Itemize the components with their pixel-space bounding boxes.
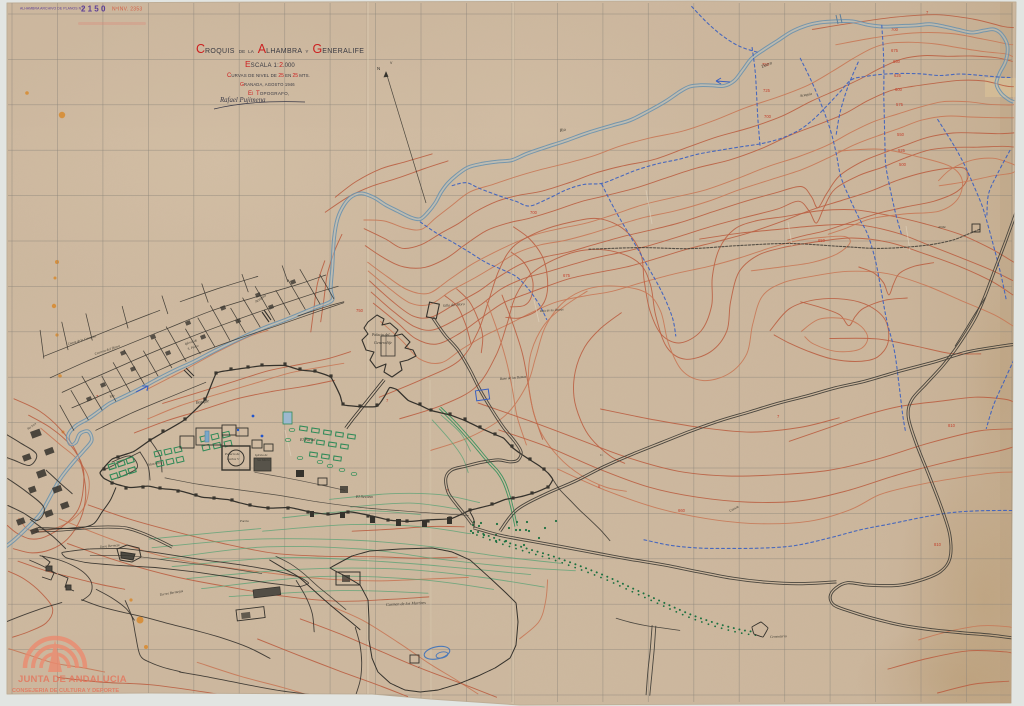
svg-text:525: 525 [898, 148, 906, 153]
svg-text:700: 700 [764, 114, 772, 119]
svg-text:Palacio de: Palacio de [224, 452, 240, 456]
svg-text:CONSEJERIA DE CULTURA Y DEPORT: CONSEJERIA DE CULTURA Y DEPORTE [12, 688, 119, 694]
svg-text:El Secano: El Secano [355, 494, 373, 499]
svg-text:ALHAMBRA ARCHIVO DE PLANOS N.º: ALHAMBRA ARCHIVO DE PLANOS N.º [20, 7, 84, 11]
svg-text:675: 675 [563, 273, 571, 278]
svg-text:JUNTA DE ANDALUCIA: JUNTA DE ANDALUCIA [18, 674, 127, 685]
svg-text:Sta Maria: Sta Maria [257, 458, 270, 462]
svg-text:725: 725 [763, 88, 771, 93]
svg-text:2150: 2150 [81, 5, 108, 14]
svg-text:810: 810 [934, 542, 942, 547]
svg-text:El Partal: El Partal [299, 437, 316, 442]
svg-text:Iglesia de: Iglesia de [254, 453, 268, 457]
svg-text:NºINV. 2353: NºINV. 2353 [112, 7, 143, 13]
svg-text:550: 550 [897, 132, 905, 137]
svg-text:660: 660 [678, 508, 686, 513]
svg-text:N: N [377, 66, 380, 71]
svg-text:650: 650 [818, 238, 826, 243]
svg-text:Palacio del: Palacio del [371, 333, 389, 337]
svg-text:575: 575 [896, 102, 904, 107]
svg-text:Generalife: Generalife [374, 340, 392, 345]
svg-text:675: 675 [891, 48, 899, 53]
svg-text:600: 600 [895, 87, 903, 92]
svg-text:650: 650 [893, 59, 901, 64]
svg-text:750: 750 [356, 308, 364, 313]
svg-text:Puerta: Puerta [239, 519, 249, 523]
svg-text:700: 700 [530, 210, 538, 215]
svg-text:810: 810 [948, 423, 956, 428]
svg-text:Aljibe: Aljibe [937, 225, 946, 229]
svg-text:Carlos V: Carlos V [227, 457, 240, 461]
svg-text:500: 500 [899, 162, 907, 167]
svg-text:C.: C. [600, 453, 603, 457]
svg-text:Rafael Pujimena: Rafael Pujimena [219, 97, 266, 104]
